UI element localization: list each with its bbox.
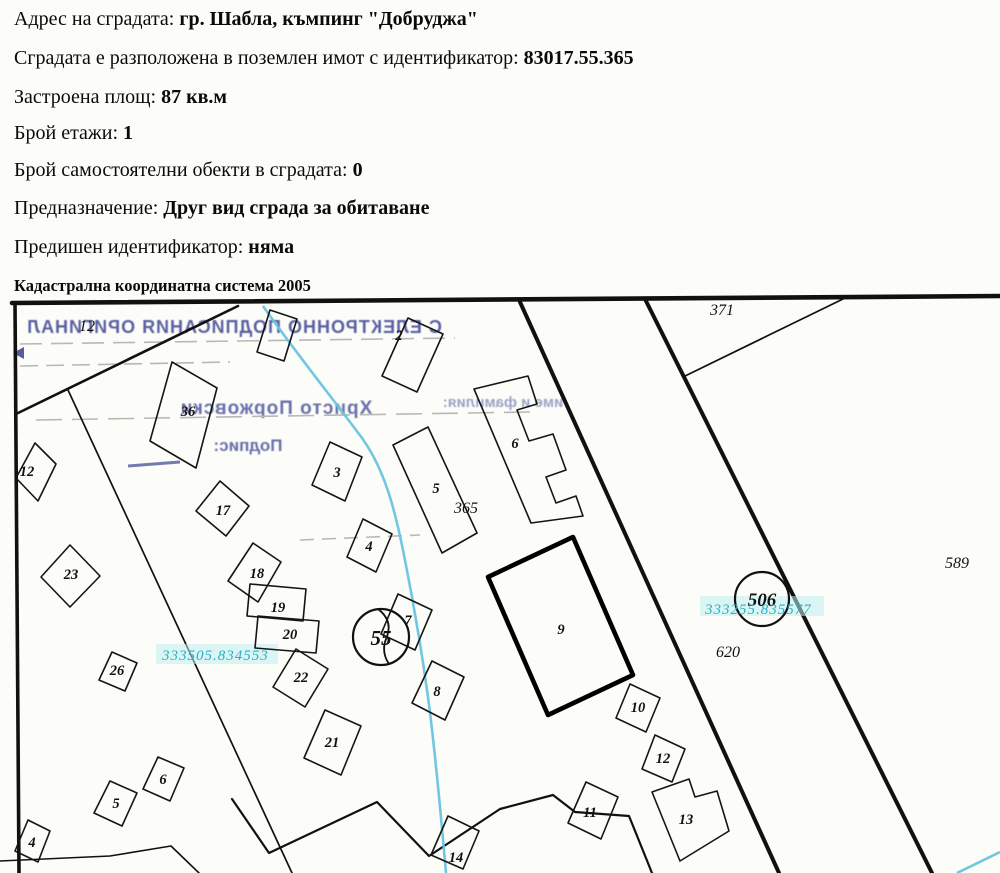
scan-artifact-line <box>36 412 530 420</box>
map-label-parcel: 589 <box>945 555 969 572</box>
map-label-bldg: 2 <box>394 328 402 344</box>
map-label-bldg: 7 <box>404 613 412 629</box>
map-label-bldg: 18 <box>250 566 265 582</box>
scan-artifact-line <box>20 338 455 344</box>
scan-artifact-line <box>20 362 230 366</box>
map-label-bldg: 4 <box>27 835 35 851</box>
map-label-bldg: 19 <box>271 600 286 616</box>
map-label-bldg: 21 <box>324 735 340 751</box>
cadastral-map: 1237136558962023631756423181920262221789… <box>0 0 1000 873</box>
cadastral-sketch-page: Адрес на сградата: гр. Шабла, къмпинг "Д… <box>0 0 1000 873</box>
map-frame-top <box>12 296 1000 303</box>
map-label-bldg: 8 <box>433 684 441 700</box>
building-outline <box>257 310 297 361</box>
map-label-bldg: 11 <box>583 805 597 821</box>
map-label-bldg: 9 <box>557 622 564 638</box>
map-label-bldg: 26 <box>109 663 125 679</box>
map-label-big55: 55 <box>371 626 392 650</box>
map-label-bldg: 36 <box>180 404 196 420</box>
road-boundary-right <box>645 299 932 873</box>
map-labels: 1237136558962023631756423181920262221789… <box>20 302 969 866</box>
map-label-bldg: 12 <box>656 751 671 767</box>
map-label-bldg: 5 <box>112 796 119 812</box>
map-label-parcel: 620 <box>716 644 740 661</box>
building-outline-2 <box>382 318 443 392</box>
boundary-triangle-371 <box>683 299 843 377</box>
stream-line <box>263 306 446 873</box>
map-label-bldg: 6 <box>159 772 167 788</box>
map-label-parcel: 12 <box>79 318 95 335</box>
map-label-bldg: 14 <box>449 850 464 866</box>
map-label-bldg: 12 <box>20 464 35 480</box>
map-label-bldg: 5 <box>432 481 439 497</box>
map-label-bldg: 20 <box>282 627 298 643</box>
map-label-bldg: 22 <box>293 670 309 686</box>
road-boundary-left <box>520 302 779 873</box>
building-outline-6 <box>474 376 583 523</box>
stamp-ink-smudge <box>128 462 180 466</box>
stream-corner-segment <box>957 852 1000 873</box>
map-label-bldg: 3 <box>332 465 340 481</box>
map-label-bldg: 13 <box>679 812 694 828</box>
map-label-cyan: 333505.834553 <box>161 648 269 664</box>
map-label-cyan: 333255.835577 <box>704 602 812 618</box>
map-label-bldg: 6 <box>511 436 519 452</box>
map-label-bldg: 4 <box>364 539 372 555</box>
map-label-parcel: 371 <box>709 302 734 319</box>
map-label-bldg: 17 <box>216 503 231 519</box>
map-label-parcel: 365 <box>453 500 478 517</box>
map-label-bldg: 10 <box>631 700 646 716</box>
map-label-bldg: 23 <box>63 567 79 583</box>
boundary-diagonal-corner <box>16 306 238 414</box>
map-frame-left <box>15 303 19 873</box>
